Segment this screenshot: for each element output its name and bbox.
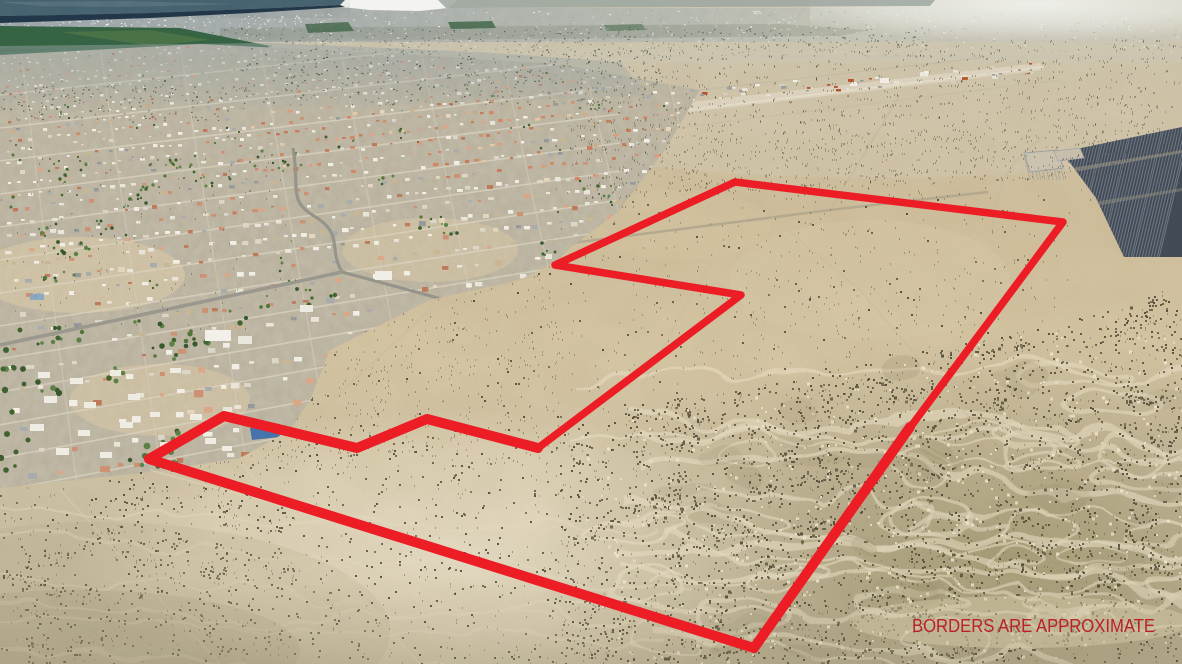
svg-text:BORDERS ARE APPROXIMATE: BORDERS ARE APPROXIMATE	[912, 615, 1155, 636]
